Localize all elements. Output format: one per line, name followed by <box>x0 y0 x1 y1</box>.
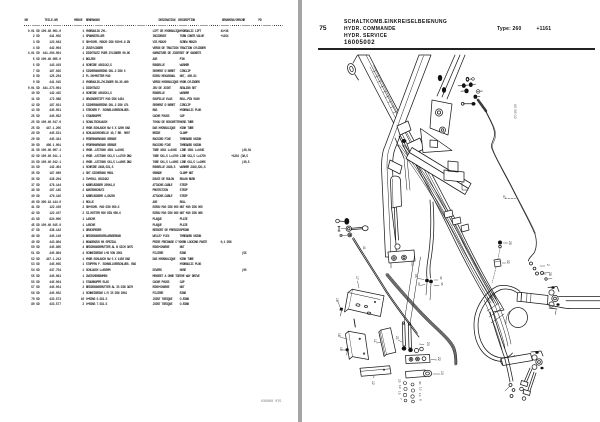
svg-text:13: 13 <box>440 371 444 375</box>
svg-text:20: 20 <box>426 342 430 346</box>
svg-text:30: 30 <box>418 381 422 385</box>
svg-text:26: 26 <box>414 274 418 278</box>
svg-text:14: 14 <box>418 393 422 397</box>
svg-text:22: 22 <box>437 357 441 361</box>
svg-text:11: 11 <box>373 339 377 343</box>
svg-text:16: 16 <box>335 298 339 302</box>
svg-text:18: 18 <box>337 333 341 337</box>
svg-text:17: 17 <box>355 276 359 280</box>
svg-text:15: 15 <box>398 391 402 395</box>
svg-text:32: 32 <box>506 260 510 264</box>
svg-text:41: 41 <box>362 246 366 250</box>
svg-text:2: 2 <box>546 264 550 266</box>
svg-text:8: 8 <box>419 399 423 401</box>
svg-text:60 98 02: 60 98 02 <box>513 104 517 119</box>
svg-text:10: 10 <box>419 387 423 391</box>
svg-text:29: 29 <box>508 241 512 245</box>
svg-text:21: 21 <box>395 336 399 340</box>
svg-text:19: 19 <box>398 385 402 389</box>
svg-text:45: 45 <box>440 282 444 286</box>
svg-text:47: 47 <box>502 195 506 199</box>
svg-text:25: 25 <box>398 379 402 383</box>
svg-text:12: 12 <box>371 381 375 385</box>
svg-text:7: 7 <box>399 398 403 400</box>
svg-text:42: 42 <box>439 276 443 280</box>
svg-text:16: 16 <box>339 347 343 351</box>
svg-text:43: 43 <box>417 282 421 286</box>
